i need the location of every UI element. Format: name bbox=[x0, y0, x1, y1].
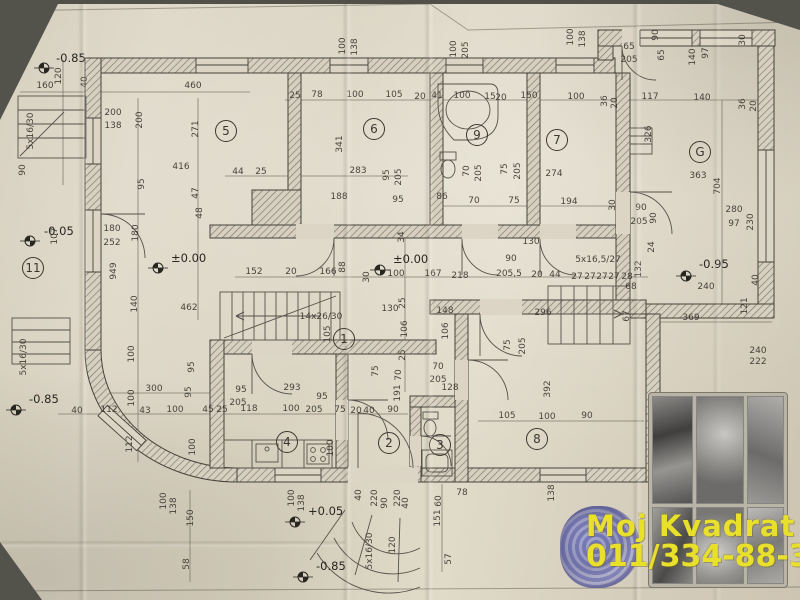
photo-thumbnail bbox=[747, 396, 784, 504]
dimension-label: 27 bbox=[571, 272, 582, 282]
elevation-value: ±0.00 bbox=[393, 252, 428, 266]
room-number: 4 bbox=[283, 435, 291, 449]
scanned-floor-plan-photo: 160120404602001382002715x16/309025781001… bbox=[0, 0, 800, 600]
dimension-label: 167 bbox=[424, 269, 441, 279]
dimension-label: 14x26/30 bbox=[300, 312, 343, 322]
dimension-label: 205 bbox=[305, 405, 322, 415]
dimension-label: 100 bbox=[326, 439, 336, 456]
dimension-label: 100 bbox=[159, 492, 169, 509]
dimension-label: 138 bbox=[350, 38, 360, 55]
dimension-label: 57 bbox=[444, 553, 454, 564]
elevation-value: -0.85 bbox=[316, 559, 346, 573]
dimension-label: 140 bbox=[693, 93, 710, 103]
dimension-label: 5x16,5/27 bbox=[575, 255, 621, 265]
photo-thumbnail bbox=[652, 396, 693, 504]
dimension-label: 90 bbox=[581, 411, 593, 421]
photo-thumbnail bbox=[696, 507, 745, 584]
dimension-label: 205 bbox=[229, 398, 246, 408]
dimension-label: 43 bbox=[139, 406, 150, 416]
dimension-label: 40 bbox=[751, 274, 761, 286]
dimension-label: 100 bbox=[538, 412, 555, 422]
dimension-label: 45 bbox=[202, 405, 213, 415]
dimension-label: 20 bbox=[350, 406, 362, 416]
dimension-label: 460 bbox=[184, 81, 201, 91]
dimension-label: 152 bbox=[245, 267, 262, 277]
dimension-label: 95 bbox=[184, 386, 194, 397]
dimension-label: 293 bbox=[283, 383, 300, 393]
dimension-label: 90 bbox=[505, 254, 517, 264]
dimension-label: 205 bbox=[474, 164, 484, 181]
dimension-label: 112 bbox=[100, 405, 117, 415]
room-number: 5 bbox=[222, 124, 230, 138]
dimension-label: 151 bbox=[433, 509, 443, 526]
dimension-label: 34 bbox=[397, 231, 407, 243]
dimension-label: 105 bbox=[498, 411, 515, 421]
dimension-label: 30 bbox=[362, 271, 372, 283]
dimension-label: 48 bbox=[195, 207, 205, 219]
dimension-label: 88 bbox=[338, 261, 348, 273]
dimension-label: 205 bbox=[518, 337, 528, 354]
photo-thumbnail bbox=[747, 507, 784, 584]
dimension-label: 369 bbox=[682, 313, 699, 323]
dimension-label: 100 bbox=[387, 269, 404, 279]
room-number: 7 bbox=[553, 133, 561, 147]
dimension-label: 205 bbox=[620, 55, 637, 65]
dimension-label: 40 bbox=[80, 76, 90, 88]
photo-thumbnail bbox=[652, 507, 693, 584]
dimension-label: 36 bbox=[738, 98, 748, 110]
dimension-label: 100 bbox=[127, 389, 137, 406]
dimension-label: 100 bbox=[188, 438, 198, 455]
dimension-label: 40 bbox=[363, 406, 375, 416]
dimension-label: 130 bbox=[381, 304, 398, 314]
dimension-label: 67 bbox=[622, 310, 632, 321]
dimension-label: 191 bbox=[393, 384, 403, 401]
dimension-label: 296 bbox=[534, 308, 551, 318]
dimension-label: 462 bbox=[180, 303, 197, 313]
dimension-label: 20 bbox=[285, 267, 297, 277]
dimension-label: 148 bbox=[436, 306, 453, 316]
dimension-label: 100 bbox=[567, 92, 584, 102]
dimension-label: 90 bbox=[387, 405, 399, 415]
dimension-label: 194 bbox=[560, 197, 577, 207]
photo-thumbnail bbox=[696, 396, 745, 504]
dimension-label: 100 bbox=[338, 37, 348, 54]
room-number: 1 bbox=[340, 332, 348, 346]
dimension-label: 78 bbox=[311, 90, 323, 100]
dimension-label: 120 bbox=[54, 67, 64, 84]
dimension-label: 20 bbox=[414, 92, 426, 102]
dimension-label: 200 bbox=[104, 108, 121, 118]
dimension-label: 100 bbox=[127, 345, 137, 362]
elevation-value: -0.95 bbox=[699, 257, 729, 271]
elevation-value: -0.85 bbox=[56, 51, 86, 65]
dimension-label: 300 bbox=[145, 384, 162, 394]
dimension-label: 138 bbox=[104, 121, 121, 131]
dimension-label: 90 bbox=[651, 29, 661, 41]
dimension-label: 90 bbox=[635, 203, 647, 213]
dimension-label: 205 bbox=[461, 41, 471, 58]
elevation-value: -0.05 bbox=[44, 224, 74, 238]
dimension-label: 180 bbox=[103, 224, 120, 234]
dimension-label: 20 bbox=[749, 100, 759, 112]
dimension-label: 200 bbox=[135, 111, 145, 128]
dimension-label: 30 bbox=[608, 199, 618, 211]
dimension-label: 138 bbox=[169, 497, 179, 514]
dimension-label: 240 bbox=[749, 346, 766, 356]
dimension-label: 40 bbox=[354, 489, 364, 501]
dimension-label: 36 bbox=[600, 95, 610, 107]
dimension-label: 150 bbox=[520, 91, 537, 101]
dimension-label: 47 bbox=[191, 187, 201, 198]
dimension-label: 15 bbox=[484, 92, 495, 102]
room-number: 9 bbox=[473, 128, 481, 142]
dimension-label: 205 bbox=[513, 162, 523, 179]
dimension-label: 25 bbox=[398, 349, 408, 360]
dimension-label: 25 bbox=[398, 297, 408, 308]
dimension-label: 68 bbox=[625, 282, 637, 292]
dimension-label: 27 bbox=[584, 272, 595, 282]
dimension-label: 218 bbox=[451, 271, 468, 281]
room-number: 3 bbox=[436, 438, 444, 452]
dimension-label: 25 bbox=[289, 91, 300, 101]
kitchen-counter bbox=[224, 440, 332, 468]
room-number: 8 bbox=[533, 432, 541, 446]
dimension-label: 280 bbox=[725, 205, 742, 215]
dimension-label: 90 bbox=[649, 212, 659, 224]
dimension-label: 150 bbox=[186, 509, 196, 526]
dimension-label: 130 bbox=[522, 237, 539, 247]
dimension-label: 230 bbox=[746, 213, 756, 230]
dimension-label: 363 bbox=[689, 171, 706, 181]
dimension-label: 97 bbox=[701, 47, 711, 58]
dimension-label: 205,5 bbox=[496, 269, 522, 279]
dimension-label: 100 bbox=[282, 404, 299, 414]
dimension-label: 140 bbox=[688, 48, 698, 65]
dimension-label: 106 bbox=[400, 320, 410, 337]
dimension-label: 40 bbox=[71, 406, 83, 416]
dimension-label: 60 bbox=[434, 495, 444, 507]
room-number: G bbox=[695, 145, 704, 159]
dimension-label: 117 bbox=[641, 92, 658, 102]
dimension-label: 58 bbox=[182, 558, 192, 570]
dimension-label: 5x16/30 bbox=[365, 532, 375, 569]
dimension-label: 283 bbox=[349, 166, 366, 176]
dimension-label: 106 bbox=[441, 322, 451, 339]
dimension-label: 271 bbox=[191, 120, 201, 137]
dimension-label: 44 bbox=[549, 270, 561, 280]
elevation-value: ±0.00 bbox=[171, 251, 206, 265]
dimension-label: 166 bbox=[319, 267, 336, 277]
dimension-label: 121 bbox=[740, 297, 750, 314]
dimension-label: 20 bbox=[495, 93, 507, 103]
dimension-label: 180 bbox=[131, 224, 141, 241]
dimension-label: 100 bbox=[166, 405, 183, 415]
dimension-label: 160 bbox=[36, 81, 53, 91]
dimension-label: 75 bbox=[371, 365, 381, 376]
dimension-label: 27 bbox=[608, 272, 619, 282]
elevation-value: +0.05 bbox=[308, 504, 343, 518]
dimension-label: 78 bbox=[456, 488, 468, 498]
dimension-label: 188 bbox=[330, 192, 347, 202]
dimension-label: 100 bbox=[449, 40, 459, 57]
dimension-label: 949 bbox=[109, 262, 119, 279]
dimension-label: 100 bbox=[287, 489, 297, 506]
dimension-label: 27 bbox=[596, 272, 607, 282]
dimension-label: 30 bbox=[738, 34, 748, 46]
dimension-label: 70 bbox=[462, 165, 472, 177]
dimension-label: 41 bbox=[431, 91, 442, 101]
dimension-label: 416 bbox=[172, 162, 189, 172]
photo-collage bbox=[648, 392, 788, 588]
dimension-label: 205 bbox=[394, 168, 404, 185]
dimension-label: 112 bbox=[125, 435, 135, 452]
dimension-label: 138 bbox=[547, 484, 557, 501]
dimension-label: 65 bbox=[623, 42, 634, 52]
dimension-label: 138 bbox=[297, 494, 307, 511]
dimension-label: 240 bbox=[697, 282, 714, 292]
dimension-label: 90 bbox=[18, 164, 28, 176]
dimension-label: 75 bbox=[334, 405, 345, 415]
dimension-label: 95 bbox=[137, 178, 147, 189]
dimension-label: 100 bbox=[346, 90, 363, 100]
dimension-label: 95 bbox=[235, 385, 246, 395]
dimension-label: 220 bbox=[370, 489, 380, 506]
dimension-label: 341 bbox=[335, 135, 345, 152]
room-number: 2 bbox=[385, 436, 393, 450]
elevation-value: -0.85 bbox=[29, 392, 59, 406]
dimension-label: 132 bbox=[634, 260, 644, 277]
dimension-label: 95 bbox=[392, 195, 403, 205]
dimension-label: 5x16/30 bbox=[19, 338, 29, 375]
room-number: 11 bbox=[25, 261, 40, 275]
dimension-label: 274 bbox=[545, 169, 562, 179]
dimension-label: 24 bbox=[647, 241, 657, 253]
dimension-label: 326 bbox=[644, 125, 654, 142]
dimension-label: 40 bbox=[401, 497, 411, 509]
dimension-label: 75 bbox=[503, 339, 513, 350]
dimension-label: 205 bbox=[429, 375, 446, 385]
dimension-label: 70 bbox=[468, 196, 480, 206]
dimension-label: 75 bbox=[500, 163, 510, 174]
dimension-label: 95 bbox=[187, 361, 197, 372]
dimension-label: 140 bbox=[130, 295, 140, 312]
dimension-label: 222 bbox=[749, 357, 766, 367]
dimension-label: 100 bbox=[566, 28, 576, 45]
dimension-label: 120 bbox=[388, 536, 398, 553]
dimension-label: 75 bbox=[508, 196, 519, 206]
dimension-label: 392 bbox=[543, 380, 553, 397]
dimension-label: 95 bbox=[316, 392, 327, 402]
dimension-label: 252 bbox=[103, 238, 120, 248]
dimension-label: 44 bbox=[232, 167, 244, 177]
dimension-label: 86 bbox=[436, 192, 448, 202]
dimension-label: 28 bbox=[621, 272, 633, 282]
dimension-label: 90 bbox=[380, 497, 390, 509]
dimension-label: 20 bbox=[531, 270, 543, 280]
dimension-label: 205 bbox=[630, 217, 647, 227]
room-number: 6 bbox=[370, 122, 378, 136]
dimension-label: 65 bbox=[657, 49, 667, 60]
dimension-label: 70 bbox=[394, 369, 404, 381]
dimension-label: 97 bbox=[728, 219, 739, 229]
dimension-label: 25 bbox=[255, 167, 266, 177]
dimension-label: 105 bbox=[323, 325, 333, 342]
dimension-label: 5x16/30 bbox=[26, 112, 36, 149]
dimension-label: 704 bbox=[713, 177, 723, 194]
dimension-label: 105 bbox=[385, 90, 402, 100]
dimension-label: 20 bbox=[610, 97, 620, 109]
dimension-label: 100 bbox=[453, 91, 470, 101]
dimension-label: 138 bbox=[578, 30, 588, 47]
dimension-label: 70 bbox=[432, 362, 444, 372]
toilet-room3 bbox=[423, 412, 438, 436]
dimension-label: 95 bbox=[382, 169, 392, 180]
dimension-label: 25 bbox=[216, 405, 227, 415]
